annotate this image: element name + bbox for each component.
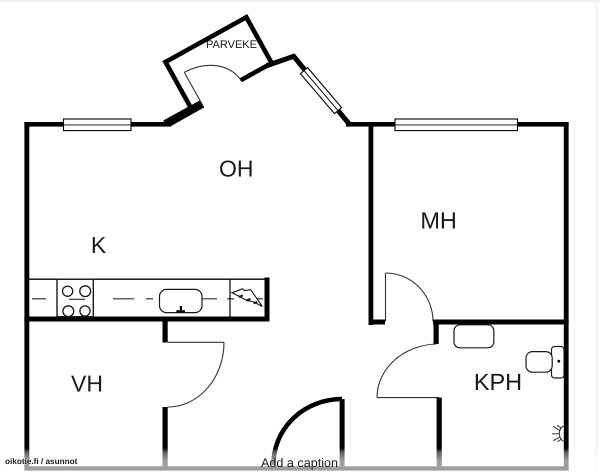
svg-text:VH: VH [71, 371, 103, 397]
svg-text:KPH: KPH [474, 369, 522, 395]
svg-text:PARVEKE: PARVEKE [206, 39, 257, 51]
svg-text:MH: MH [420, 208, 457, 234]
svg-text:OH: OH [219, 155, 254, 181]
svg-text:oikotie.fi / asunnot: oikotie.fi / asunnot [5, 457, 78, 466]
svg-text:K: K [91, 232, 107, 258]
svg-text:Add a caption: Add a caption [261, 456, 338, 470]
